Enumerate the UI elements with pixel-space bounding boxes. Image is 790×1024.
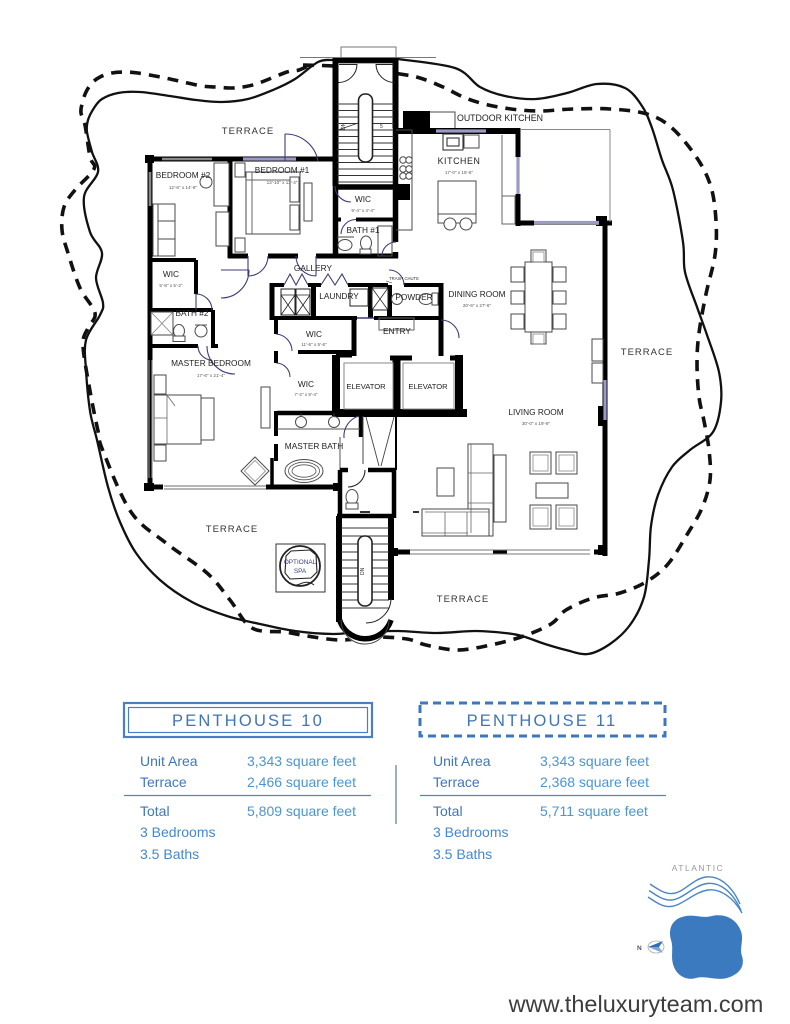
svg-text:Total: Total bbox=[433, 803, 463, 819]
svg-text:MASTER BATH: MASTER BATH bbox=[285, 441, 343, 451]
svg-text:BEDROOM #1: BEDROOM #1 bbox=[255, 165, 310, 175]
svg-text:Terrace: Terrace bbox=[140, 774, 187, 790]
svg-text:POWDER: POWDER bbox=[395, 292, 432, 302]
svg-text:12'-6" x 14'-8": 12'-6" x 14'-8" bbox=[169, 185, 198, 190]
svg-text:Unit Area: Unit Area bbox=[140, 753, 198, 769]
svg-text:BATH #2: BATH #2 bbox=[175, 308, 208, 318]
svg-text:13'-10" x 13'-4": 13'-10" x 13'-4" bbox=[267, 180, 298, 185]
svg-text:DINING ROOM: DINING ROOM bbox=[448, 289, 505, 299]
svg-text:9'-4" x 4'-4": 9'-4" x 4'-4" bbox=[351, 208, 375, 213]
svg-text:TRASH CHUTE: TRASH CHUTE bbox=[389, 276, 419, 281]
svg-text:TERRACE: TERRACE bbox=[206, 524, 258, 535]
svg-text:LAUNDRY: LAUNDRY bbox=[319, 291, 359, 301]
svg-text:WIC: WIC bbox=[163, 269, 179, 279]
svg-text:KITCHEN: KITCHEN bbox=[438, 156, 481, 166]
svg-text:ATLANTIC: ATLANTIC bbox=[672, 863, 724, 873]
svg-text:30'-0" x 19'-9": 30'-0" x 19'-9" bbox=[522, 421, 551, 426]
svg-text:7'-2" x 8'-4": 7'-2" x 8'-4" bbox=[294, 392, 318, 397]
svg-text:N: N bbox=[637, 945, 642, 952]
svg-text:WIC: WIC bbox=[298, 379, 314, 389]
svg-text:WIC: WIC bbox=[355, 194, 371, 204]
svg-text:3,343 square feet: 3,343 square feet bbox=[247, 753, 356, 769]
svg-text:DN: DN bbox=[341, 122, 347, 130]
svg-text:20'-6" x 27'-6": 20'-6" x 27'-6" bbox=[463, 303, 492, 308]
svg-text:SPA: SPA bbox=[294, 568, 307, 575]
svg-text:WIC: WIC bbox=[306, 329, 322, 339]
svg-text:ENTRY: ENTRY bbox=[383, 326, 411, 336]
svg-text:PENTHOUSE 11: PENTHOUSE 11 bbox=[467, 712, 618, 730]
svg-text:3 Bedrooms: 3 Bedrooms bbox=[433, 824, 508, 840]
svg-text:Unit Area: Unit Area bbox=[433, 753, 491, 769]
svg-text:TERRACE: TERRACE bbox=[437, 594, 489, 605]
svg-text:Total: Total bbox=[140, 803, 170, 819]
svg-text:2,368 square feet: 2,368 square feet bbox=[540, 774, 649, 790]
svg-text:BATH #1: BATH #1 bbox=[346, 225, 379, 235]
svg-text:3.5 Baths: 3.5 Baths bbox=[433, 846, 492, 862]
svg-text:3.5 Baths: 3.5 Baths bbox=[140, 846, 199, 862]
svg-text:3 Bedrooms: 3 Bedrooms bbox=[140, 824, 215, 840]
svg-text:TERRACE: TERRACE bbox=[222, 126, 274, 137]
svg-text:17'-6" x 21'-4": 17'-6" x 21'-4" bbox=[197, 373, 226, 378]
svg-text:ELEVATOR: ELEVATOR bbox=[346, 382, 386, 391]
svg-text:www.theluxuryteam.com: www.theluxuryteam.com bbox=[508, 991, 764, 1017]
svg-text:GALLERY: GALLERY bbox=[294, 263, 333, 273]
svg-text:5'-8" x 5'-2": 5'-8" x 5'-2" bbox=[159, 283, 183, 288]
svg-text:PENTHOUSE 10: PENTHOUSE 10 bbox=[172, 712, 324, 730]
svg-text:2,466 square feet: 2,466 square feet bbox=[247, 774, 356, 790]
svg-text:MASTER BEDROOM: MASTER BEDROOM bbox=[171, 358, 251, 368]
svg-text:3,343 square feet: 3,343 square feet bbox=[540, 753, 649, 769]
svg-text:11'-6" x 5'-6": 11'-6" x 5'-6" bbox=[301, 342, 327, 347]
svg-text:BEDROOM #2: BEDROOM #2 bbox=[156, 170, 211, 180]
svg-text:ELEVATOR: ELEVATOR bbox=[408, 382, 448, 391]
svg-text:TERRACE: TERRACE bbox=[621, 347, 673, 358]
svg-text:OPTIONAL: OPTIONAL bbox=[284, 559, 317, 566]
svg-text:OUTDOOR KITCHEN: OUTDOOR KITCHEN bbox=[457, 113, 543, 123]
svg-text:17'-0" x 15'-6": 17'-0" x 15'-6" bbox=[445, 170, 474, 175]
svg-text:5: 5 bbox=[380, 124, 383, 130]
svg-text:Terrace: Terrace bbox=[433, 774, 480, 790]
svg-text:5,809 square feet: 5,809 square feet bbox=[247, 803, 356, 819]
svg-text:DN: DN bbox=[360, 567, 366, 575]
svg-text:5,711 square feet: 5,711 square feet bbox=[540, 803, 648, 819]
svg-text:LIVING ROOM: LIVING ROOM bbox=[508, 407, 563, 417]
